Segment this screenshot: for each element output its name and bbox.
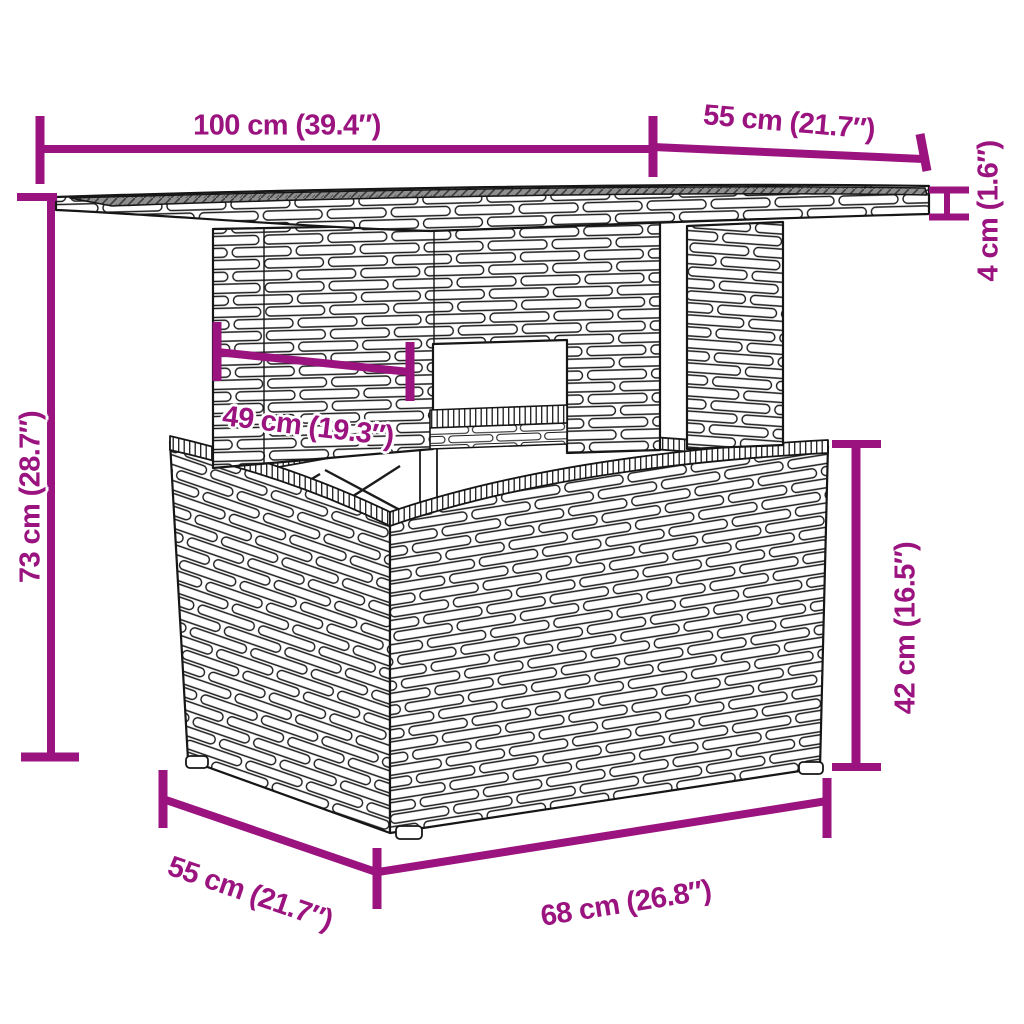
base-foot-right — [799, 762, 823, 774]
base-foot-front — [396, 826, 422, 839]
window-inner-weave — [430, 423, 567, 449]
upper-right-panel — [687, 222, 783, 449]
lower-box — [170, 436, 828, 839]
dim-label-tabletop-thickness: 4 cm (1.6″) — [973, 140, 1006, 281]
dim-label-base-height: 42 cm (16.5″) — [890, 542, 923, 714]
tabletop — [56, 185, 929, 231]
dim-base-height-line — [832, 444, 881, 767]
table-illustration — [0, 0, 1024, 1024]
dimension-diagram: 100 cm (39.4″) 55 cm (21.7″) 4 cm (1.6″)… — [0, 0, 1024, 1024]
base-foot-left — [186, 756, 208, 768]
dim-tabletop-thickness-line — [929, 190, 969, 217]
dim-label-tabletop-width: 100 cm (39.4″) — [193, 110, 381, 143]
dim-label-overall-height: 73 cm (28.7″) — [15, 411, 48, 583]
